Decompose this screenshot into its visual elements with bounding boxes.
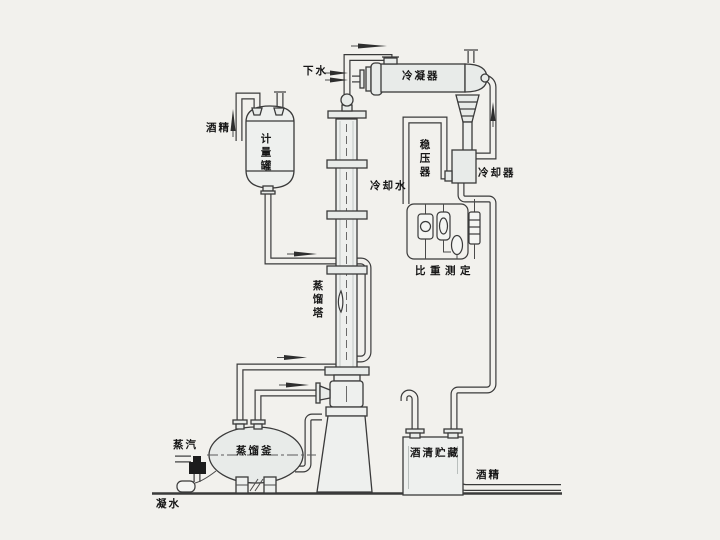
column-internal-detail [338,291,343,312]
label-steam: 蒸汽 [173,440,198,452]
hydrometer-cylinder [469,212,480,244]
pipe-condenser-vent [464,50,478,63]
density-measurement-cluster [407,199,480,259]
base-trumpet-nozzle [320,386,330,400]
label-condenser: 冷凝器 [402,71,440,83]
steam-valve [189,456,206,474]
label-drain-water: 下水 [303,66,328,78]
arrow-vapor-right [351,44,387,49]
label-distillation-column: 蒸馏塔 [311,280,323,321]
column-flange-1 [327,160,367,168]
label-condensate: 凝水 [156,499,181,511]
column-flange-2 [327,211,367,219]
column-flange-bottom [325,367,369,375]
distillation-column [325,94,369,375]
label-alcohol-in: 酒精 [206,123,231,135]
arrow-kettle-upper [277,355,307,360]
stabilizer-box [445,150,476,183]
arrow-feed-right [287,252,317,257]
label-distillation-kettle: 蒸馏釜 [236,446,274,458]
column-top-ball [341,94,353,106]
column-top-plate [328,111,366,118]
label-alcohol-storage: 酒清贮藏 [410,448,460,460]
diagram-linework [0,0,720,540]
process-flow-diagram: 下水 冷凝器 酒精 计量罐 稳压器 冷却水 冷却器 比重测定 蒸馏塔 蒸馏釜 蒸… [0,0,720,540]
alcohol-storage-tank [403,429,463,495]
arrow-alcohol-up [231,109,236,137]
pipe-alcohol-out [456,479,561,488]
column-pedestal [317,416,372,492]
float-bulb [452,236,463,255]
column-flange-3 [327,266,367,274]
label-alcohol-out: 酒精 [476,470,501,482]
rotameter-device [437,212,450,240]
label-cooling-water: 冷却水 [370,181,408,193]
label-cooler: 冷却器 [478,168,516,180]
reducer-stack [456,95,479,151]
pipe-storage-hook-vent [404,393,415,430]
label-pressure-stabilizer: 稳压器 [418,139,430,180]
label-measuring-tank: 计量罐 [259,133,271,174]
arrow-kettle-lower [279,383,309,388]
sight-glass-device [418,214,433,239]
label-density-measurement: 比重测定 [415,266,475,278]
column-base [316,375,372,492]
